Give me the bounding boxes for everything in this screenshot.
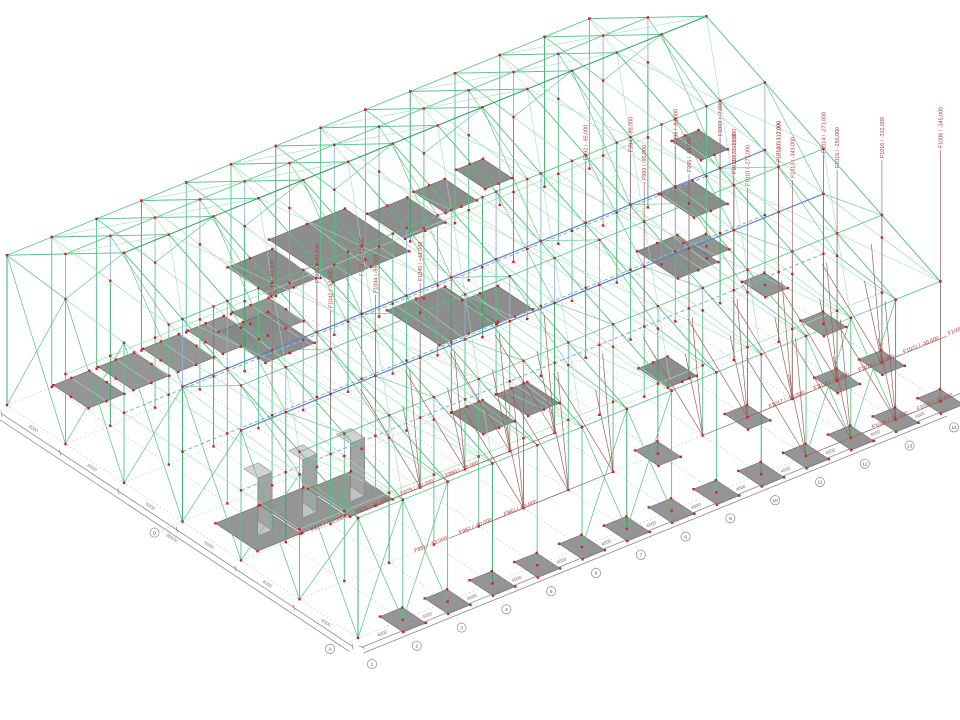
truss-bottom-chord[interactable] [317, 332, 376, 376]
structural-node[interactable] [764, 284, 766, 286]
structural-node[interactable] [244, 225, 246, 227]
structural-node[interactable] [307, 488, 309, 490]
structural-node[interactable] [428, 184, 430, 186]
structural-node[interactable] [836, 255, 838, 257]
structural-node[interactable] [357, 517, 359, 519]
structural-node[interactable] [132, 389, 134, 391]
tension-rod[interactable] [864, 281, 882, 363]
structural-node[interactable] [509, 380, 511, 382]
structural-node[interactable] [822, 310, 824, 312]
truss-top-chord[interactable] [648, 16, 707, 17]
structural-node[interactable] [133, 351, 135, 353]
structural-node[interactable] [553, 362, 555, 364]
structural-node[interactable] [409, 90, 411, 92]
structural-node[interactable] [285, 411, 287, 413]
truss-top-chord[interactable] [389, 415, 448, 481]
force-label[interactable]: F996 / -81,000 [673, 109, 679, 144]
member-brace[interactable] [582, 427, 627, 529]
roof-purlin[interactable] [7, 19, 589, 256]
truss-diagonal[interactable] [66, 253, 125, 299]
structural-node[interactable] [374, 375, 376, 377]
structural-node[interactable] [469, 604, 471, 606]
structural-node[interactable] [849, 424, 851, 426]
truss-top-chord[interactable] [545, 36, 604, 37]
structural-node[interactable] [656, 440, 658, 442]
structural-node[interactable] [626, 540, 628, 542]
truss-bottom-chord[interactable] [586, 223, 645, 267]
structural-node[interactable] [468, 279, 470, 281]
structural-node[interactable] [388, 562, 390, 564]
structural-node[interactable] [446, 480, 448, 482]
structural-node[interactable] [671, 140, 673, 142]
structural-node[interactable] [302, 339, 304, 341]
structural-node[interactable] [491, 462, 493, 464]
structural-node[interactable] [787, 287, 789, 289]
structural-node[interactable] [392, 142, 394, 144]
truss-diagonal[interactable] [245, 180, 304, 226]
structural-node[interactable] [543, 36, 545, 38]
structural-node[interactable] [64, 298, 66, 300]
structural-node[interactable] [240, 384, 242, 386]
roof-brace[interactable] [245, 181, 259, 198]
structural-node[interactable] [271, 282, 273, 284]
structural-node[interactable] [660, 193, 662, 195]
structural-node[interactable] [168, 323, 170, 325]
structural-node[interactable] [522, 437, 524, 439]
structural-node[interactable] [316, 396, 318, 398]
structural-node[interactable] [859, 383, 861, 385]
structural-node[interactable] [667, 387, 669, 389]
member-brace[interactable] [7, 255, 66, 444]
structural-node[interactable] [181, 385, 183, 387]
structural-node[interactable] [433, 543, 435, 545]
structural-node[interactable] [585, 357, 587, 359]
structural-node[interactable] [293, 286, 295, 288]
structural-node[interactable] [629, 136, 631, 138]
structural-node[interactable] [719, 302, 721, 304]
structural-node[interactable] [495, 191, 497, 193]
structural-node[interactable] [527, 415, 529, 417]
structural-node[interactable] [835, 367, 837, 369]
structural-node[interactable] [285, 541, 287, 543]
tension-rod[interactable] [871, 244, 882, 362]
truss-diagonal[interactable] [837, 256, 896, 300]
structural-node[interactable] [715, 371, 717, 373]
structural-node[interactable] [598, 344, 600, 346]
structural-node[interactable] [217, 331, 219, 333]
roof-brace[interactable] [321, 108, 424, 127]
structural-node[interactable] [315, 277, 317, 279]
structural-node[interactable] [648, 506, 650, 508]
structural-node[interactable] [244, 370, 246, 372]
structural-node[interactable] [213, 356, 215, 358]
structural-node[interactable] [696, 375, 698, 377]
structural-node[interactable] [894, 298, 896, 300]
structural-node[interactable] [697, 269, 699, 271]
structural-node[interactable] [719, 100, 721, 102]
structural-node[interactable] [647, 61, 649, 63]
structural-node[interactable] [244, 180, 246, 182]
structural-node[interactable] [557, 173, 559, 175]
structural-node[interactable] [240, 326, 242, 328]
structural-node[interactable] [674, 185, 676, 187]
structural-node[interactable] [647, 206, 649, 208]
structural-node[interactable] [306, 223, 308, 225]
structural-node[interactable] [314, 342, 316, 344]
structural-node[interactable] [6, 254, 8, 256]
structural-node[interactable] [168, 375, 170, 377]
structural-node[interactable] [344, 207, 346, 209]
structural-node[interactable] [858, 358, 860, 360]
structural-node[interactable] [616, 51, 618, 53]
structural-node[interactable] [719, 167, 721, 169]
structural-node[interactable] [482, 433, 484, 435]
structural-node[interactable] [682, 242, 684, 244]
structural-node[interactable] [616, 211, 618, 213]
structural-node[interactable] [205, 322, 207, 324]
structural-node[interactable] [498, 183, 500, 185]
structural-node[interactable] [643, 265, 645, 267]
structural-node[interactable] [522, 382, 524, 384]
structural-node[interactable] [406, 196, 408, 198]
structural-node[interactable] [115, 377, 117, 379]
structural-node[interactable] [95, 368, 97, 370]
structural-node[interactable] [436, 284, 438, 286]
structural-node[interactable] [226, 367, 228, 369]
structural-node[interactable] [242, 321, 244, 323]
structural-node[interactable] [212, 215, 214, 217]
truss-bottom-chord[interactable] [572, 161, 631, 205]
structural-node[interactable] [804, 443, 806, 445]
roof-brace[interactable] [500, 36, 603, 55]
structural-node[interactable] [813, 376, 815, 378]
structural-node[interactable] [777, 341, 779, 343]
structural-node[interactable] [805, 335, 807, 337]
structural-node[interactable] [660, 263, 662, 265]
structural-node[interactable] [482, 158, 484, 160]
structural-node[interactable] [845, 326, 847, 328]
structural-node[interactable] [670, 389, 672, 391]
member-brace[interactable] [358, 518, 403, 620]
structural-node[interactable] [643, 325, 645, 327]
structural-node[interactable] [212, 375, 214, 377]
structural-node[interactable] [259, 504, 261, 506]
structural-node[interactable] [777, 271, 779, 273]
truss-top-chord[interactable] [572, 71, 631, 137]
structural-node[interactable] [316, 331, 318, 333]
structural-node[interactable] [705, 15, 707, 17]
structural-node[interactable] [836, 310, 838, 312]
structural-node[interactable] [405, 359, 407, 361]
structural-node[interactable] [836, 380, 838, 382]
tension-rod[interactable] [775, 317, 793, 399]
structural-node[interactable] [154, 406, 156, 408]
structural-node[interactable] [836, 232, 838, 234]
structural-node[interactable] [764, 149, 766, 151]
roof-brace[interactable] [514, 53, 617, 72]
structural-node[interactable] [401, 606, 403, 608]
structural-node[interactable] [588, 167, 590, 169]
structural-node[interactable] [378, 315, 380, 317]
structural-node[interactable] [388, 437, 390, 439]
structural-node[interactable] [168, 463, 170, 465]
truss-diagonal[interactable] [276, 146, 335, 190]
structural-node[interactable] [715, 479, 717, 481]
structural-node[interactable] [479, 292, 481, 294]
structural-node[interactable] [585, 222, 587, 224]
truss-diagonal[interactable] [613, 324, 672, 390]
structural-node[interactable] [388, 492, 390, 494]
structural-node[interactable] [402, 499, 404, 501]
structural-node[interactable] [464, 293, 466, 295]
force-label[interactable]: F993 / -90,000 [642, 145, 648, 180]
structural-node[interactable] [881, 361, 883, 363]
structural-node[interactable] [212, 445, 214, 447]
force-label[interactable]: F1043 / -41,000 [360, 238, 366, 276]
structural-node[interactable] [450, 411, 452, 413]
structural-node[interactable] [478, 378, 480, 380]
truss-top-chord[interactable] [7, 254, 66, 255]
structural-node[interactable] [536, 444, 538, 446]
structural-node[interactable] [168, 393, 170, 395]
tension-rod[interactable] [448, 388, 466, 470]
structural-node[interactable] [366, 213, 368, 215]
structural-node[interactable] [571, 300, 573, 302]
structural-node[interactable] [693, 513, 695, 515]
force-label[interactable]: F1015 / -250,000 [835, 127, 841, 168]
structural-node[interactable] [288, 207, 290, 209]
structural-node[interactable] [612, 346, 614, 348]
structural-node[interactable] [510, 387, 512, 389]
structural-node[interactable] [733, 184, 735, 186]
structural-node[interactable] [343, 455, 345, 457]
structural-node[interactable] [240, 489, 242, 491]
structural-node[interactable] [540, 375, 542, 377]
roof-brace[interactable] [245, 162, 348, 181]
truss-diagonal[interactable] [155, 216, 214, 262]
structural-node[interactable] [374, 435, 376, 437]
structural-node[interactable] [423, 107, 425, 109]
structural-node[interactable] [258, 338, 260, 340]
structural-node[interactable] [681, 381, 683, 383]
structural-node[interactable] [693, 216, 695, 218]
structural-node[interactable] [298, 598, 300, 600]
structural-node[interactable] [637, 367, 639, 369]
structural-node[interactable] [741, 281, 743, 283]
force-label[interactable]: F1006 / -345,000 [938, 107, 944, 148]
structural-node[interactable] [726, 203, 728, 205]
structural-node[interactable] [705, 105, 707, 107]
structural-node[interactable] [939, 400, 941, 402]
roof-brace[interactable] [52, 218, 155, 237]
structural-node[interactable] [301, 532, 303, 534]
roof-brace[interactable] [334, 125, 437, 144]
member-brace[interactable] [403, 500, 448, 602]
structural-node[interactable] [602, 154, 604, 156]
structural-node[interactable] [275, 145, 277, 147]
structural-node[interactable] [543, 186, 545, 188]
truss-diagonal[interactable] [451, 276, 510, 277]
structural-node[interactable] [822, 253, 824, 255]
structural-node[interactable] [604, 549, 606, 551]
structural-node[interactable] [140, 349, 142, 351]
structural-node[interactable] [616, 141, 618, 143]
structural-node[interactable] [419, 486, 421, 488]
truss-diagonal[interactable] [200, 199, 259, 288]
structural-node[interactable] [160, 340, 162, 342]
structural-node[interactable] [526, 318, 528, 320]
structural-node[interactable] [904, 365, 906, 367]
structural-node[interactable] [264, 362, 266, 364]
structural-node[interactable] [491, 582, 493, 584]
structural-node[interactable] [691, 180, 693, 182]
structural-node[interactable] [364, 258, 366, 260]
truss-bottom-chord[interactable] [779, 212, 838, 256]
structural-node[interactable] [782, 452, 784, 454]
structural-node[interactable] [737, 470, 739, 472]
structural-node[interactable] [195, 364, 197, 366]
floor-plate[interactable] [456, 159, 512, 189]
force-label[interactable]: F994 / -85,000 [629, 117, 635, 152]
structural-node[interactable] [626, 528, 628, 530]
member-beam[interactable] [300, 293, 882, 530]
structural-node[interactable] [481, 106, 483, 108]
roof-brace[interactable] [424, 108, 438, 125]
structural-node[interactable] [140, 199, 142, 201]
structural-node[interactable] [423, 297, 425, 299]
structural-node[interactable] [181, 520, 183, 522]
structural-node[interactable] [746, 269, 748, 271]
structural-node[interactable] [199, 243, 201, 245]
truss-diagonal[interactable] [514, 71, 573, 117]
structural-node[interactable] [347, 161, 349, 163]
structural-node[interactable] [64, 443, 66, 445]
structural-node[interactable] [349, 516, 351, 518]
structural-node[interactable] [733, 359, 735, 361]
truss-bottom-chord[interactable] [227, 368, 285, 412]
structural-node[interactable] [581, 546, 583, 548]
structural-node[interactable] [168, 233, 170, 235]
structural-node[interactable] [123, 342, 125, 344]
structural-node[interactable] [559, 567, 561, 569]
structural-node[interactable] [636, 250, 638, 252]
force-label[interactable]: F1016 / -312,000 [880, 117, 886, 158]
structural-node[interactable] [484, 188, 486, 190]
structural-node[interactable] [602, 34, 604, 36]
truss-diagonal[interactable] [541, 240, 600, 241]
structural-node[interactable] [240, 429, 242, 431]
structural-node[interactable] [657, 452, 659, 454]
structural-node[interactable] [468, 579, 470, 581]
structural-node[interactable] [746, 404, 748, 406]
structural-node[interactable] [536, 564, 538, 566]
structural-node[interactable] [481, 266, 483, 268]
structural-node[interactable] [481, 196, 483, 198]
roof-brace[interactable] [451, 210, 554, 258]
structural-node[interactable] [581, 558, 583, 560]
structural-node[interactable] [446, 588, 448, 590]
structural-node[interactable] [257, 357, 259, 359]
structural-node[interactable] [791, 250, 793, 252]
structural-node[interactable] [836, 392, 838, 394]
structural-node[interactable] [492, 595, 494, 597]
structural-node[interactable] [433, 473, 435, 475]
structural-node[interactable] [214, 522, 216, 524]
structural-node[interactable] [350, 470, 352, 472]
truss-bottom-chord[interactable] [527, 179, 586, 223]
truss-top-chord[interactable] [823, 149, 882, 215]
truss-diagonal[interactable] [186, 182, 245, 226]
structural-node[interactable] [777, 166, 779, 168]
structural-node[interactable] [424, 597, 426, 599]
truss-bottom-chord[interactable] [66, 299, 125, 343]
structural-node[interactable] [204, 341, 206, 343]
structural-node[interactable] [181, 318, 183, 320]
structural-node[interactable] [626, 408, 628, 410]
structural-node[interactable] [461, 299, 463, 301]
structural-node[interactable] [123, 393, 125, 395]
structural-node[interactable] [378, 170, 380, 172]
structural-node[interactable] [557, 243, 559, 245]
structural-node[interactable] [761, 485, 763, 487]
structural-node[interactable] [454, 222, 456, 224]
structural-node[interactable] [405, 227, 407, 229]
structural-node[interactable] [302, 269, 304, 271]
structural-node[interactable] [553, 257, 555, 259]
structural-node[interactable] [822, 193, 824, 195]
member-brace[interactable] [183, 387, 242, 561]
structural-node[interactable] [598, 284, 600, 286]
structural-node[interactable] [425, 622, 427, 624]
structural-node[interactable] [70, 396, 72, 398]
structural-node[interactable] [657, 465, 659, 467]
structural-node[interactable] [881, 236, 883, 238]
structural-node[interactable] [404, 238, 406, 240]
structural-node[interactable] [361, 313, 363, 315]
structural-node[interactable] [791, 328, 793, 330]
structural-node[interactable] [249, 257, 251, 259]
structural-node[interactable] [240, 559, 242, 561]
truss-bottom-chord[interactable] [155, 263, 214, 307]
structural-node[interactable] [195, 345, 197, 347]
structural-node[interactable] [497, 285, 499, 287]
structural-node[interactable] [476, 199, 478, 201]
member-brace[interactable] [7, 299, 66, 405]
roof-brace[interactable] [541, 174, 644, 222]
structural-node[interactable] [222, 353, 224, 355]
truss-diagonal[interactable] [424, 107, 483, 153]
structural-node[interactable] [106, 381, 108, 383]
structural-node[interactable] [423, 227, 425, 229]
structural-node[interactable] [468, 134, 470, 136]
structural-node[interactable] [271, 414, 273, 416]
structural-node[interactable] [702, 434, 704, 436]
structural-node[interactable] [468, 209, 470, 211]
structural-node[interactable] [333, 189, 335, 191]
structural-node[interactable] [464, 468, 466, 470]
structural-node[interactable] [444, 212, 446, 214]
truss-bottom-chord[interactable] [514, 117, 573, 161]
structural-node[interactable] [647, 136, 649, 138]
structural-node[interactable] [746, 291, 748, 293]
structural-node[interactable] [881, 374, 883, 376]
roof-brace[interactable] [527, 89, 630, 137]
structural-node[interactable] [629, 268, 631, 270]
structural-node[interactable] [438, 344, 440, 346]
structural-node[interactable] [199, 318, 201, 320]
structural-node[interactable] [512, 261, 514, 263]
structural-node[interactable] [374, 330, 376, 332]
